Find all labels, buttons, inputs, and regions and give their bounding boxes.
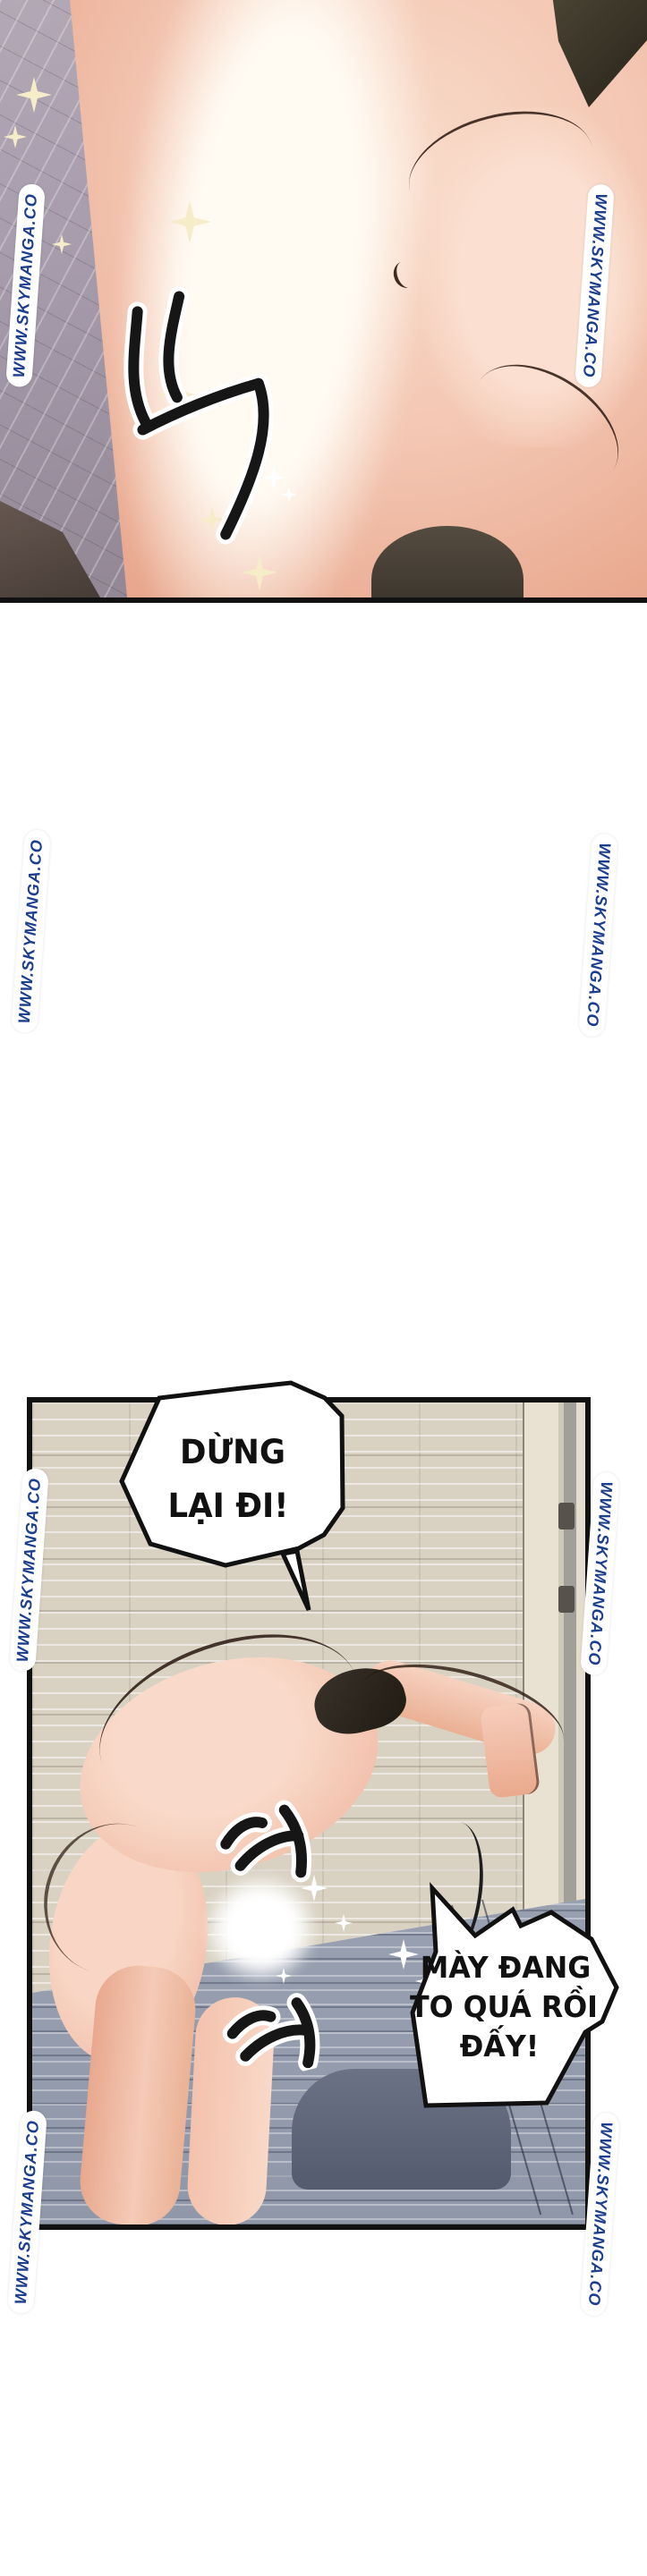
door-hinge (558, 1586, 575, 1613)
watermark-text: WWW.SKYMANGA.CO (583, 843, 614, 1029)
speech1-line1: DỪNG (147, 1433, 319, 1471)
door-hinge (558, 1503, 575, 1529)
watermark-text: WWW.SKYMANGA.CO (12, 2120, 43, 2306)
speech1-line2: LẠI ĐI! (138, 1487, 319, 1525)
dark-shadow-shape (371, 526, 524, 603)
watermark-mid-left: WWW.SKYMANGA.CO (11, 829, 51, 1033)
speech2-line1: MÀY ĐANG (411, 1950, 600, 1985)
watermark-text: WWW.SKYMANGA.CO (15, 839, 47, 1025)
hair-silhouette (542, 0, 647, 113)
manga-page: DỪNG LẠI ĐI! MÀY ĐANG TO QUÁ RỒI ĐẤY! WW… (0, 0, 647, 2576)
sfx-top (101, 273, 311, 555)
panel-top-artwork (0, 0, 647, 603)
shower-door-frame (523, 1402, 587, 1926)
watermark-mid-right: WWW.SKYMANGA.CO (578, 833, 618, 1037)
speech2-line2: TO QUÁ RỒI (405, 1989, 603, 2024)
speech2-line3: ĐẤY! (430, 2029, 568, 2063)
